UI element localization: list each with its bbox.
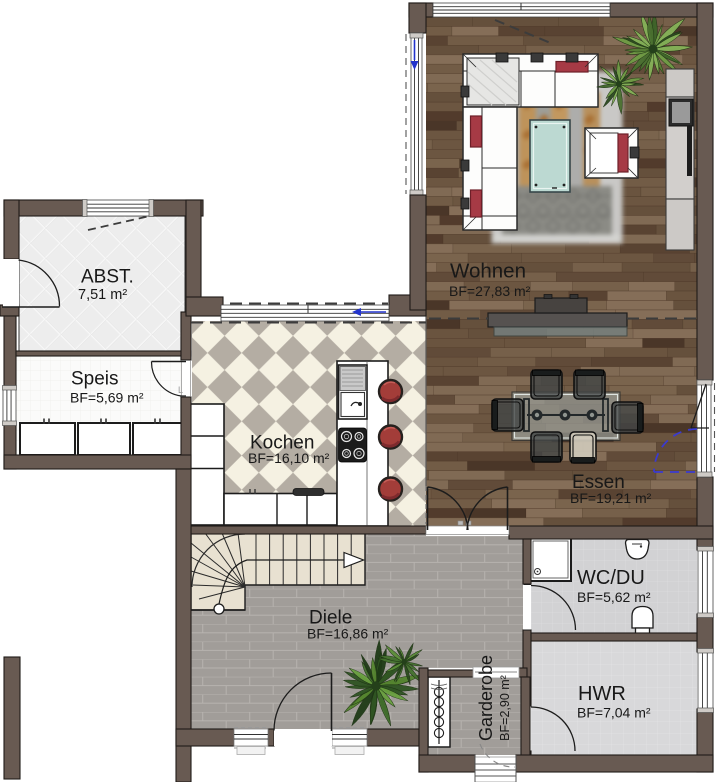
svg-text:BF=27,83 m²: BF=27,83 m² bbox=[449, 283, 531, 299]
svg-text:7,51 m²: 7,51 m² bbox=[78, 287, 127, 303]
svg-text:Speis: Speis bbox=[71, 369, 119, 390]
svg-text:HWR: HWR bbox=[578, 683, 626, 705]
svg-text:BF=16,86 m²: BF=16,86 m² bbox=[307, 626, 389, 642]
svg-text:Wohnen: Wohnen bbox=[450, 260, 526, 283]
svg-text:BF=19,21 m²: BF=19,21 m² bbox=[570, 490, 652, 506]
svg-text:BF=16,10 m²: BF=16,10 m² bbox=[248, 450, 330, 466]
svg-text:Garderobe: Garderobe bbox=[476, 655, 496, 741]
svg-text:L: L bbox=[178, 385, 183, 395]
svg-text:BF=5,69 m²: BF=5,69 m² bbox=[70, 390, 144, 406]
svg-text:ABST.: ABST. bbox=[81, 267, 134, 288]
svg-text:WC/DU: WC/DU bbox=[577, 567, 645, 589]
svg-text:BF=2,90 m²: BF=2,90 m² bbox=[498, 675, 512, 741]
svg-text:BF=5,62 m²: BF=5,62 m² bbox=[577, 589, 651, 605]
svg-text:BF=7,04 m²: BF=7,04 m² bbox=[577, 705, 651, 721]
